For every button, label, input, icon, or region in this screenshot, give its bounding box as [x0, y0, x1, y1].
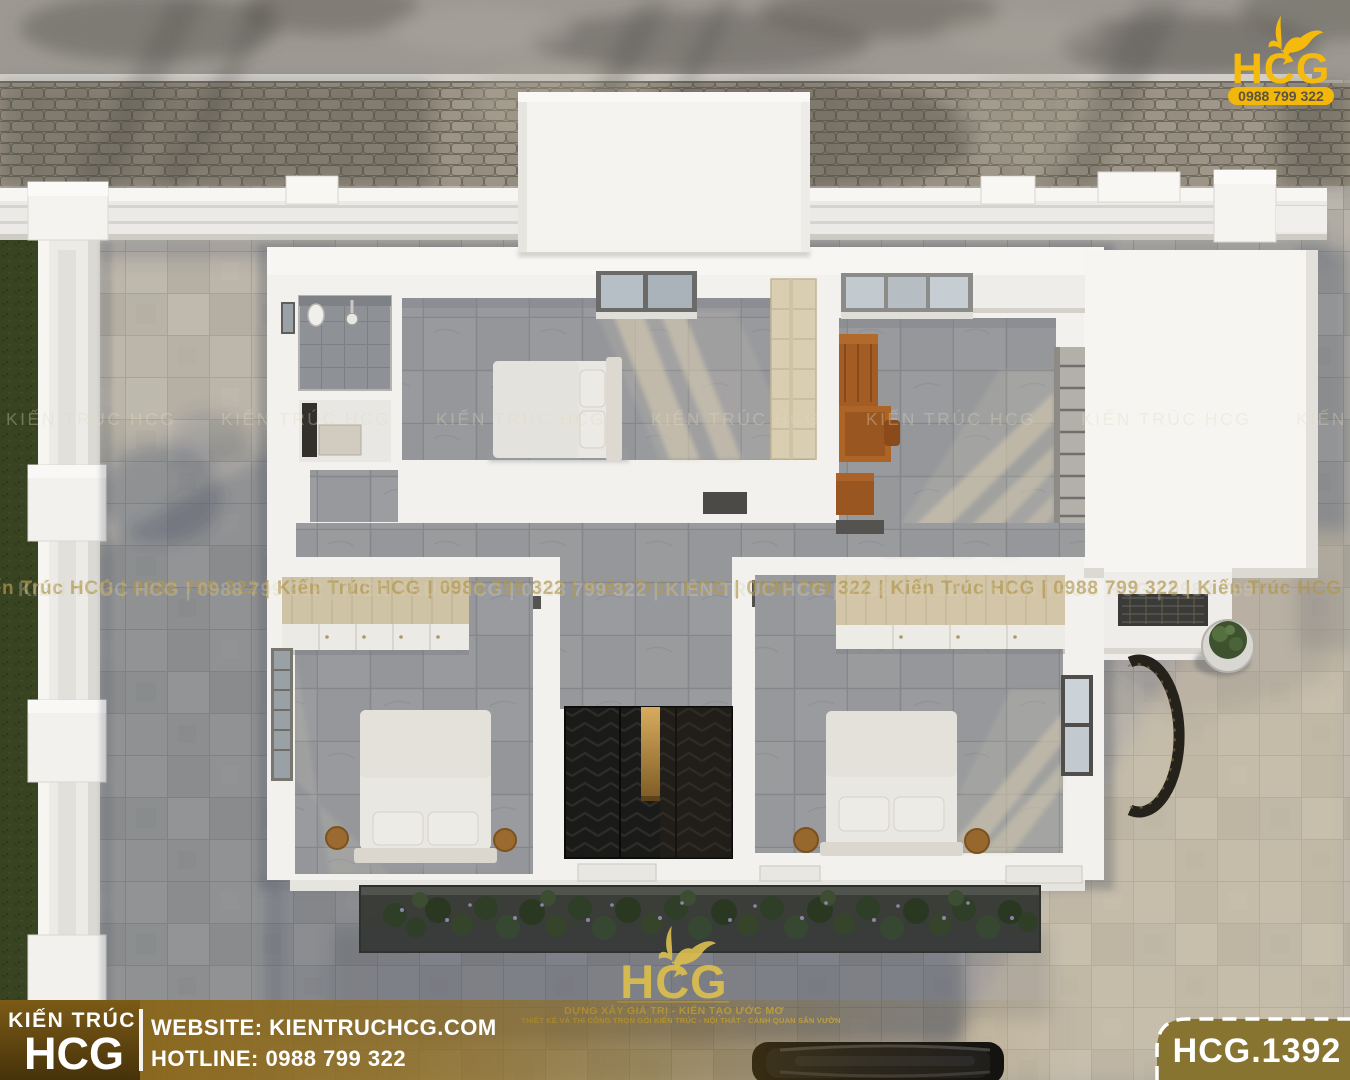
svg-text:HCG.1392: HCG.1392	[1173, 1032, 1342, 1070]
svg-text:KIẾN TRÚC HCG: KIẾN TRÚC HCG	[221, 408, 391, 429]
svg-text:0988 799 322: 0988 799 322	[1238, 88, 1324, 104]
svg-text:HCG: HCG	[24, 1028, 124, 1079]
svg-text:HOTLINE: 0988 799 322: HOTLINE: 0988 799 322	[151, 1046, 406, 1071]
svg-text:KIẾN TRÚC HCG: KIẾN TRÚC HCG	[1081, 408, 1251, 429]
svg-text:KIẾN TRÚC HCG: KIẾN TRÚC HCG	[436, 408, 606, 429]
svg-text:KIẾN TR: KIẾN TR	[1296, 408, 1350, 429]
svg-text:HCG: HCG	[1232, 45, 1331, 93]
svg-text:WEBSITE: KIENTRUCHCG.COM: WEBSITE: KIENTRUCHCG.COM	[151, 1015, 497, 1040]
svg-text:KIẾN TRÚC HCG: KIẾN TRÚC HCG	[6, 408, 176, 429]
svg-text:KIẾN TRÚC HCG: KIẾN TRÚC HCG	[866, 408, 1036, 429]
svg-text:KIẾN TRÚC HCG | 0988 799 322: KIẾN TRÚC HCG | 0988 799 322 | KIẾN TRÚC…	[18, 579, 1254, 601]
svg-text:KIẾN TRÚC HCG: KIẾN TRÚC HCG	[651, 408, 821, 429]
